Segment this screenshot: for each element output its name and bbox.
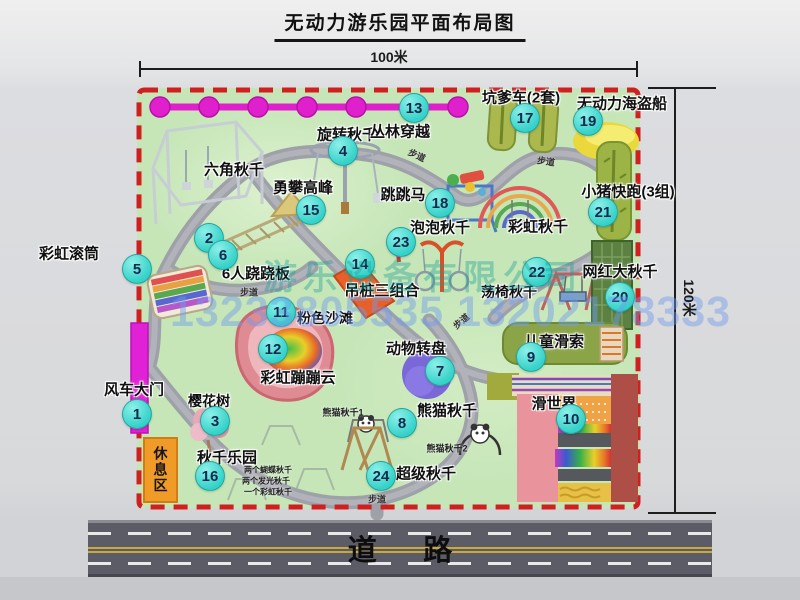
rest-area-label: 休息区	[151, 446, 171, 494]
page-title: 无动力游乐园平面布局图	[274, 8, 525, 42]
road-label: 道路	[301, 527, 498, 569]
map-label: 彩虹滚筒	[39, 243, 99, 264]
playground-layout-map: 无动力游乐园平面布局图 100米 120米	[0, 0, 800, 600]
park-area	[137, 88, 640, 508]
width-dimension-label: 100米	[370, 47, 407, 67]
height-dimension-label: 120米	[679, 279, 699, 316]
road: 道路	[88, 520, 712, 577]
bottom-margin	[0, 577, 800, 600]
rest-area: 休息区	[143, 437, 178, 503]
